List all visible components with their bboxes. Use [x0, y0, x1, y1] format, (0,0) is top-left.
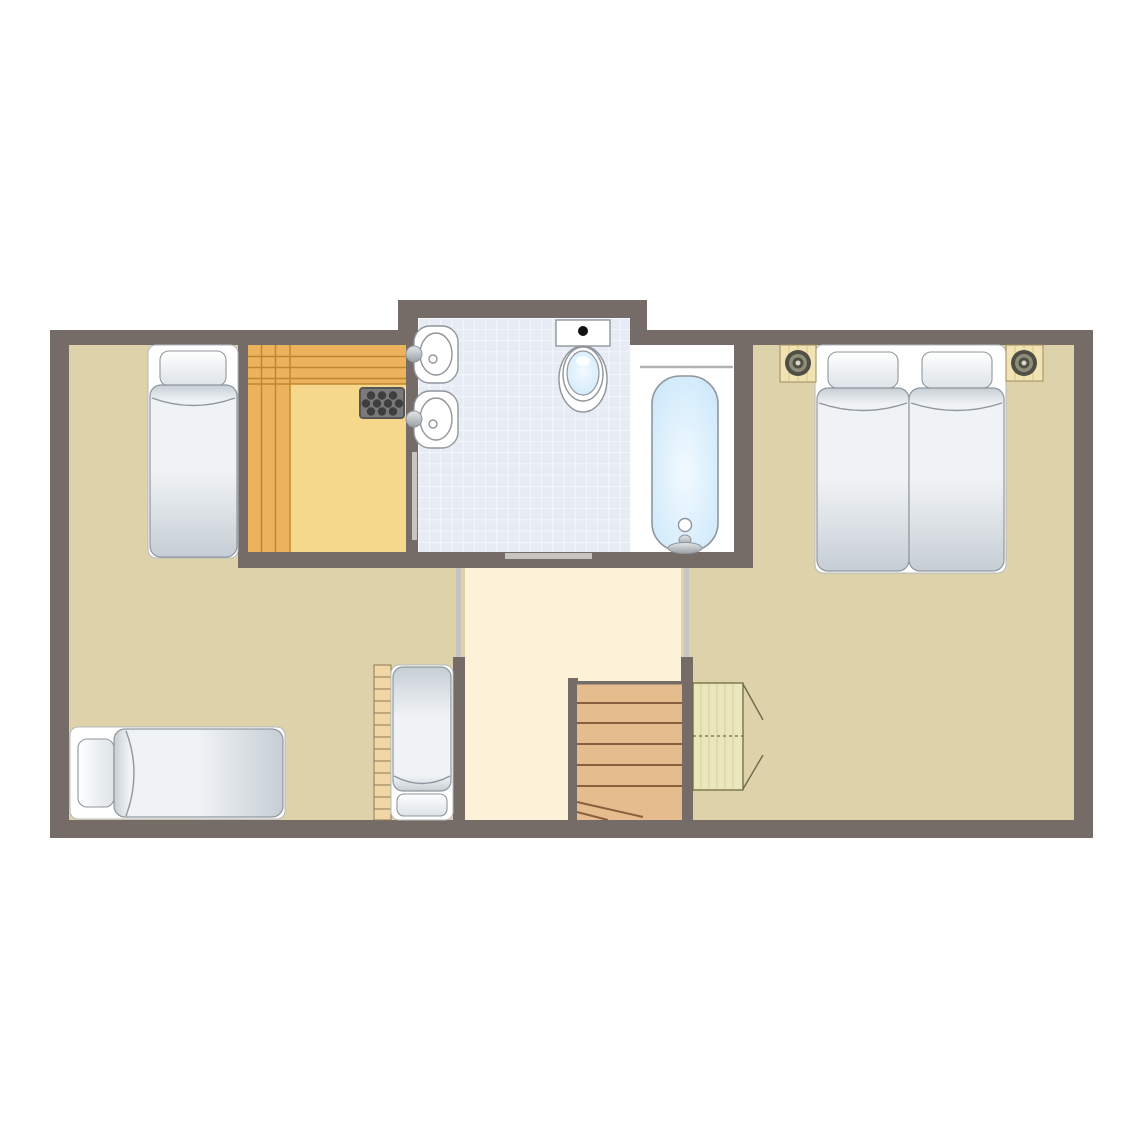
nightstand-right — [1006, 345, 1043, 381]
wall-sauna-left — [238, 345, 248, 552]
duvet-right — [909, 388, 1004, 571]
staircase — [577, 681, 682, 820]
twin-beds — [815, 345, 1006, 573]
tap-icon — [406, 411, 422, 427]
basin-drain — [429, 355, 437, 363]
nightstand-left — [780, 345, 816, 382]
pillow — [160, 351, 226, 386]
bathtub — [652, 376, 718, 554]
duvet — [393, 667, 451, 791]
stair-top-edge — [577, 681, 682, 685]
tub-overflow — [679, 519, 692, 532]
bathroom-sliding-door — [505, 553, 592, 559]
hallway-right-door — [684, 568, 689, 657]
sauna-bench-left — [248, 345, 290, 552]
pillow — [397, 794, 447, 816]
duvet — [114, 729, 283, 817]
flush-button-icon — [578, 326, 588, 336]
floor-plan-canvas — [0, 0, 1145, 1145]
wall-stair-stub — [568, 678, 578, 820]
sauna-heater-icon — [360, 388, 404, 418]
bed-single-middle — [374, 665, 453, 820]
duvet — [150, 385, 237, 557]
pillow — [78, 739, 114, 807]
duvet-left — [817, 388, 909, 571]
floor-plan-page — [0, 0, 1145, 1145]
bed-single-bottom-left — [70, 727, 285, 819]
tub-drain-plate-icon — [668, 543, 702, 554]
pillow-left — [828, 352, 898, 388]
wall-bathroom-right — [734, 345, 753, 552]
hallway-left-door — [456, 568, 461, 657]
pillow-right — [922, 352, 992, 388]
tap-icon — [406, 346, 422, 362]
wall-hallway-left — [453, 657, 465, 820]
toilet-bowl-highlight — [576, 356, 590, 366]
lamp-icon — [785, 350, 811, 376]
wall-hallway-right — [681, 657, 693, 820]
sauna-door — [412, 452, 417, 540]
wall-south-band — [238, 552, 753, 568]
toilet — [556, 320, 610, 412]
bed-single-top-left — [148, 345, 238, 558]
lamp-icon — [1011, 350, 1037, 376]
basin-drain — [429, 420, 437, 428]
